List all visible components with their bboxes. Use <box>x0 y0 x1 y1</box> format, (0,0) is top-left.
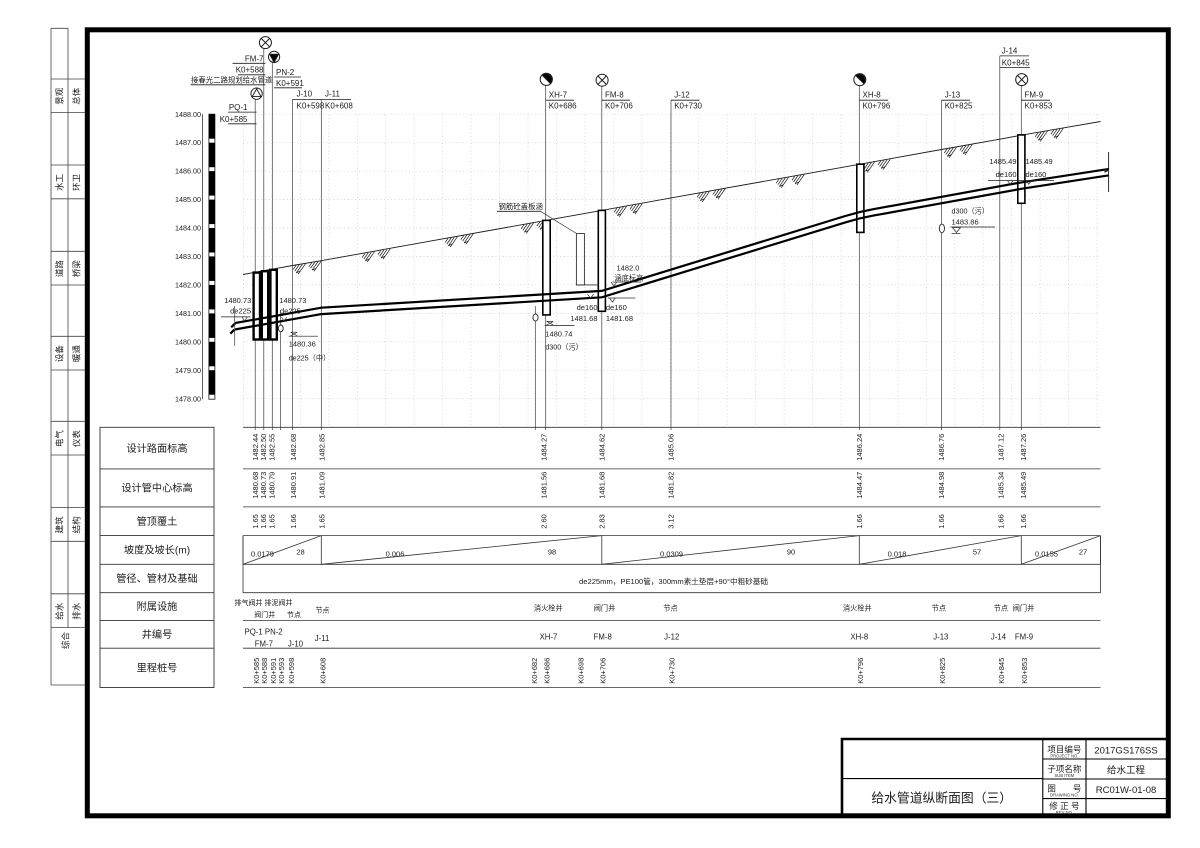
svg-text:K0+853: K0+853 <box>1020 658 1029 684</box>
svg-text:总体: 总体 <box>72 87 82 105</box>
svg-text:给水: 给水 <box>55 602 65 620</box>
svg-text:1.66: 1.66 <box>1019 514 1028 529</box>
svg-text:2.60: 2.60 <box>540 514 549 529</box>
svg-text:阀门井: 阀门井 <box>1013 604 1035 613</box>
svg-text:桥梁: 桥梁 <box>72 260 82 278</box>
svg-text:J-10: J-10 <box>288 639 304 648</box>
svg-text:K0+598: K0+598 <box>287 658 296 684</box>
svg-text:K0+588: K0+588 <box>260 658 269 684</box>
svg-text:J-11: J-11 <box>315 634 330 643</box>
svg-text:环卫: 环卫 <box>72 173 82 191</box>
svg-text:1485.49: 1485.49 <box>1026 157 1053 166</box>
svg-text:1482.68: 1482.68 <box>289 434 298 461</box>
svg-text:1487.26: 1487.26 <box>1019 434 1028 461</box>
svg-text:de160: de160 <box>606 303 627 312</box>
svg-text:景观: 景观 <box>55 87 65 105</box>
svg-text:K0+730: K0+730 <box>668 658 677 684</box>
svg-text:1487.00: 1487.00 <box>175 138 201 147</box>
svg-text:给水工程: 给水工程 <box>1107 765 1146 777</box>
svg-text:XH-8: XH-8 <box>850 633 868 642</box>
svg-text:de160: de160 <box>577 303 598 312</box>
svg-text:节点: 节点 <box>994 604 1008 613</box>
svg-text:阀门井: 阀门井 <box>594 604 616 613</box>
svg-text:0.0155: 0.0155 <box>1035 550 1058 559</box>
svg-text:设计路面标高: 设计路面标高 <box>126 442 187 455</box>
svg-text:1482.55: 1482.55 <box>267 434 276 461</box>
svg-text:消火栓井: 消火栓井 <box>843 604 872 613</box>
svg-text:1481.00: 1481.00 <box>175 309 201 318</box>
svg-text:1484.98: 1484.98 <box>937 472 946 499</box>
svg-text:附属设施: 附属设施 <box>137 600 178 613</box>
svg-text:1485.06: 1485.06 <box>667 434 676 461</box>
svg-text:1486.76: 1486.76 <box>937 434 946 461</box>
svg-text:管顶覆土: 管顶覆土 <box>137 515 178 528</box>
svg-text:1483.00: 1483.00 <box>175 252 201 261</box>
svg-text:1485.34: 1485.34 <box>996 472 1005 499</box>
svg-text:d300（污）: d300（污） <box>952 207 990 216</box>
svg-text:仪表: 仪表 <box>72 430 82 448</box>
svg-text:综合: 综合 <box>61 631 71 649</box>
svg-text:1484.47: 1484.47 <box>855 472 864 499</box>
svg-text:90: 90 <box>787 548 795 557</box>
svg-text:电气: 电气 <box>55 430 65 448</box>
svg-text:节点: 节点 <box>287 611 301 619</box>
svg-text:钢筋砼盖板涵: 钢筋砼盖板涵 <box>499 202 543 211</box>
svg-text:1478.00: 1478.00 <box>175 394 201 403</box>
svg-text:设计管中心标高: 设计管中心标高 <box>121 482 192 495</box>
svg-text:井编号: 井编号 <box>142 628 173 641</box>
svg-text:K0+825: K0+825 <box>938 658 947 684</box>
svg-text:道路: 道路 <box>55 260 65 278</box>
svg-text:1480.79: 1480.79 <box>267 472 276 499</box>
svg-text:PQ-1 PN-2: PQ-1 PN-2 <box>245 628 283 637</box>
svg-text:K0+845: K0+845 <box>1002 58 1030 67</box>
svg-text:de160: de160 <box>1026 170 1047 179</box>
svg-text:暖通: 暖通 <box>72 345 82 363</box>
svg-text:1483.86: 1483.86 <box>952 217 979 226</box>
svg-text:J-12: J-12 <box>674 91 690 100</box>
svg-text:1481.56: 1481.56 <box>540 472 549 499</box>
svg-text:J-14: J-14 <box>991 633 1007 642</box>
svg-text:节点: 节点 <box>663 604 677 613</box>
svg-text:FM-8: FM-8 <box>605 91 624 100</box>
svg-text:K0+853: K0+853 <box>1025 102 1053 111</box>
svg-text:1.66: 1.66 <box>937 514 946 529</box>
svg-text:J-13: J-13 <box>945 91 961 100</box>
svg-text:结构: 结构 <box>72 516 82 533</box>
svg-text:1488.00: 1488.00 <box>175 110 201 119</box>
svg-text:27: 27 <box>1079 548 1087 557</box>
svg-text:K0+706: K0+706 <box>605 102 633 111</box>
svg-text:1485.49: 1485.49 <box>989 157 1016 166</box>
svg-text:0.018: 0.018 <box>888 550 907 559</box>
svg-text:1487.12: 1487.12 <box>996 434 1005 461</box>
svg-text:K0+686: K0+686 <box>549 102 577 111</box>
svg-text:1484.27: 1484.27 <box>540 434 549 461</box>
svg-text:J-13: J-13 <box>933 633 948 642</box>
svg-text:PN-2: PN-2 <box>276 68 295 77</box>
svg-text:1.66: 1.66 <box>996 514 1005 529</box>
svg-text:K0+706: K0+706 <box>599 658 608 684</box>
svg-text:1.65: 1.65 <box>267 514 276 529</box>
svg-text:K0+796: K0+796 <box>856 658 865 684</box>
svg-text:d300（污）: d300（污） <box>545 343 583 352</box>
svg-text:0.006: 0.006 <box>386 550 405 559</box>
svg-text:K0+588: K0+588 <box>236 66 264 75</box>
svg-text:98: 98 <box>548 548 556 557</box>
svg-text:1480.00: 1480.00 <box>175 337 201 346</box>
svg-text:1486.00: 1486.00 <box>175 167 201 176</box>
svg-text:SUB ITEM: SUB ITEM <box>1055 773 1075 778</box>
svg-text:REV NO.: REV NO. <box>1056 810 1073 815</box>
svg-text:XH-7: XH-7 <box>540 633 558 642</box>
svg-text:K0+591: K0+591 <box>276 79 304 88</box>
svg-text:K0+608: K0+608 <box>325 101 353 110</box>
svg-text:1480.73: 1480.73 <box>224 296 251 305</box>
svg-text:28: 28 <box>296 548 304 557</box>
svg-text:de225: de225 <box>280 307 301 316</box>
svg-text:J-14: J-14 <box>1002 46 1018 55</box>
svg-text:K0+593: K0+593 <box>277 658 286 684</box>
svg-text:0.0309: 0.0309 <box>660 550 683 559</box>
svg-text:1481.68: 1481.68 <box>606 314 633 323</box>
svg-text:1481.09: 1481.09 <box>317 472 326 499</box>
svg-text:涵底标高: 涵底标高 <box>615 273 644 282</box>
svg-text:1480.74: 1480.74 <box>545 329 572 338</box>
svg-text:1481.82: 1481.82 <box>667 472 676 499</box>
svg-text:2017GS176SS: 2017GS176SS <box>1094 746 1157 757</box>
svg-text:里程桩号: 里程桩号 <box>137 662 178 675</box>
svg-text:1482.0: 1482.0 <box>617 264 640 273</box>
svg-text:PROJECT NO.: PROJECT NO. <box>1050 754 1078 759</box>
svg-text:FM-7: FM-7 <box>255 639 273 648</box>
svg-text:阀门井: 阀门井 <box>254 610 275 619</box>
svg-text:de160: de160 <box>996 170 1017 179</box>
svg-text:de225mm，PE100管，300mm素土垫层+90°中粗: de225mm，PE100管，300mm素土垫层+90°中粗砂基础 <box>579 576 768 586</box>
svg-text:1.66: 1.66 <box>855 514 864 529</box>
svg-text:1485.00: 1485.00 <box>175 195 201 204</box>
svg-text:1480.73: 1480.73 <box>279 296 306 305</box>
svg-text:2.83: 2.83 <box>598 514 607 529</box>
svg-text:DRAWING NO.: DRAWING NO. <box>1050 793 1079 798</box>
svg-text:K0+585: K0+585 <box>220 115 248 124</box>
svg-text:K0+686: K0+686 <box>543 658 552 684</box>
svg-text:排气阀井 排泥阀井: 排气阀井 排泥阀井 <box>235 598 293 607</box>
svg-text:1480.91: 1480.91 <box>289 472 298 499</box>
svg-text:0.0179: 0.0179 <box>251 550 274 559</box>
svg-text:K0+682: K0+682 <box>530 658 539 684</box>
svg-text:1485.49: 1485.49 <box>1019 472 1028 499</box>
svg-text:K0+608: K0+608 <box>318 658 327 684</box>
svg-text:节点: 节点 <box>316 607 330 615</box>
svg-text:K0+825: K0+825 <box>945 102 973 111</box>
svg-text:3.12: 3.12 <box>667 514 676 529</box>
svg-text:K0+730: K0+730 <box>674 102 702 111</box>
svg-text:K0+845: K0+845 <box>997 658 1006 684</box>
svg-text:1481.68: 1481.68 <box>598 472 607 499</box>
svg-text:FM-7: FM-7 <box>245 55 264 64</box>
svg-text:1481.68: 1481.68 <box>570 314 597 323</box>
svg-text:建筑: 建筑 <box>55 516 65 534</box>
svg-text:1484.00: 1484.00 <box>175 224 201 233</box>
svg-text:节点: 节点 <box>932 604 946 613</box>
svg-text:57: 57 <box>973 548 981 557</box>
svg-text:1482.85: 1482.85 <box>317 434 326 461</box>
svg-text:1.65: 1.65 <box>317 514 326 529</box>
svg-text:1484.62: 1484.62 <box>598 434 607 461</box>
svg-text:1480.36: 1480.36 <box>289 339 316 348</box>
svg-text:FM-9: FM-9 <box>1015 633 1033 642</box>
svg-text:K0+698: K0+698 <box>577 658 586 684</box>
svg-text:RC01W-01-08: RC01W-01-08 <box>1096 785 1157 796</box>
svg-text:设备: 设备 <box>55 345 65 363</box>
svg-text:de225（中）: de225（中） <box>289 354 331 363</box>
svg-text:给水管道纵断面图（三）: 给水管道纵断面图（三） <box>871 791 1012 806</box>
svg-text:de225: de225 <box>230 307 251 316</box>
svg-text:水工: 水工 <box>55 173 65 191</box>
svg-text:消火栓井: 消火栓井 <box>534 604 563 613</box>
svg-text:J-12: J-12 <box>664 633 679 642</box>
svg-text:1482.00: 1482.00 <box>175 281 201 290</box>
svg-text:XH-7: XH-7 <box>549 91 568 100</box>
svg-text:J-11: J-11 <box>325 90 341 99</box>
svg-text:XH-8: XH-8 <box>863 91 882 100</box>
svg-text:管径、管材及基础: 管径、管材及基础 <box>116 572 198 585</box>
svg-text:接春光二路规划给水管道: 接春光二路规划给水管道 <box>191 76 273 85</box>
svg-text:J-10: J-10 <box>297 90 313 99</box>
svg-text:1486.24: 1486.24 <box>855 434 864 461</box>
svg-text:排水: 排水 <box>72 602 82 620</box>
svg-text:1.66: 1.66 <box>289 514 298 529</box>
svg-text:坡度及坡长(m): 坡度及坡长(m) <box>124 544 190 557</box>
svg-text:K0+796: K0+796 <box>863 102 891 111</box>
svg-text:FM-9: FM-9 <box>1025 91 1044 100</box>
svg-text:1479.00: 1479.00 <box>175 366 201 375</box>
svg-text:PQ-1: PQ-1 <box>229 103 248 112</box>
svg-text:K0+598: K0+598 <box>297 101 325 110</box>
svg-text:FM-8: FM-8 <box>594 633 612 642</box>
